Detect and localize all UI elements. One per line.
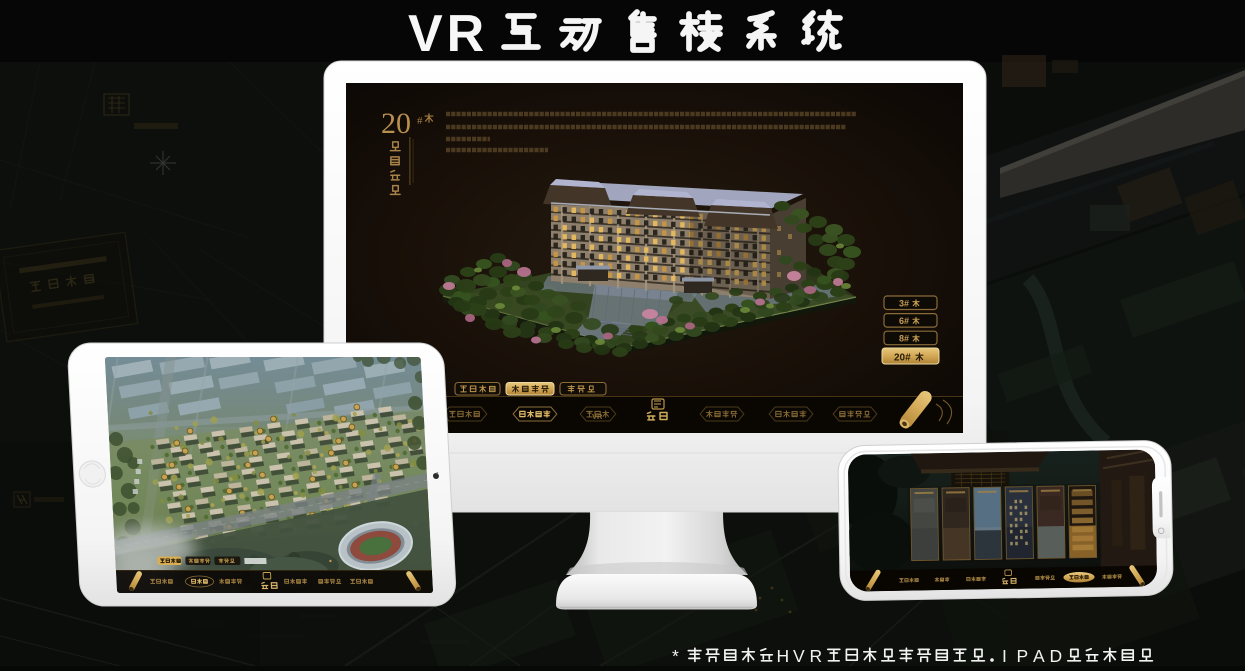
svg-text:#: #: [417, 115, 423, 127]
svg-text:*: *: [672, 646, 679, 666]
svg-text:VR: VR: [592, 412, 603, 421]
svg-text:A: A: [1033, 646, 1045, 666]
svg-text:P: P: [1017, 646, 1029, 666]
svg-text:I: I: [1002, 646, 1007, 666]
svg-text:R: R: [810, 646, 823, 666]
svg-text:20: 20: [381, 107, 411, 140]
svg-text:20#: 20#: [894, 353, 911, 364]
svg-text:V: V: [793, 646, 805, 666]
svg-text:D: D: [1050, 646, 1063, 666]
svg-text:H: H: [777, 646, 790, 666]
svg-text:VR: VR: [408, 5, 488, 63]
svg-text:6#: 6#: [899, 316, 909, 326]
svg-text:8#: 8#: [899, 334, 909, 344]
svg-text:3#: 3#: [899, 299, 909, 309]
